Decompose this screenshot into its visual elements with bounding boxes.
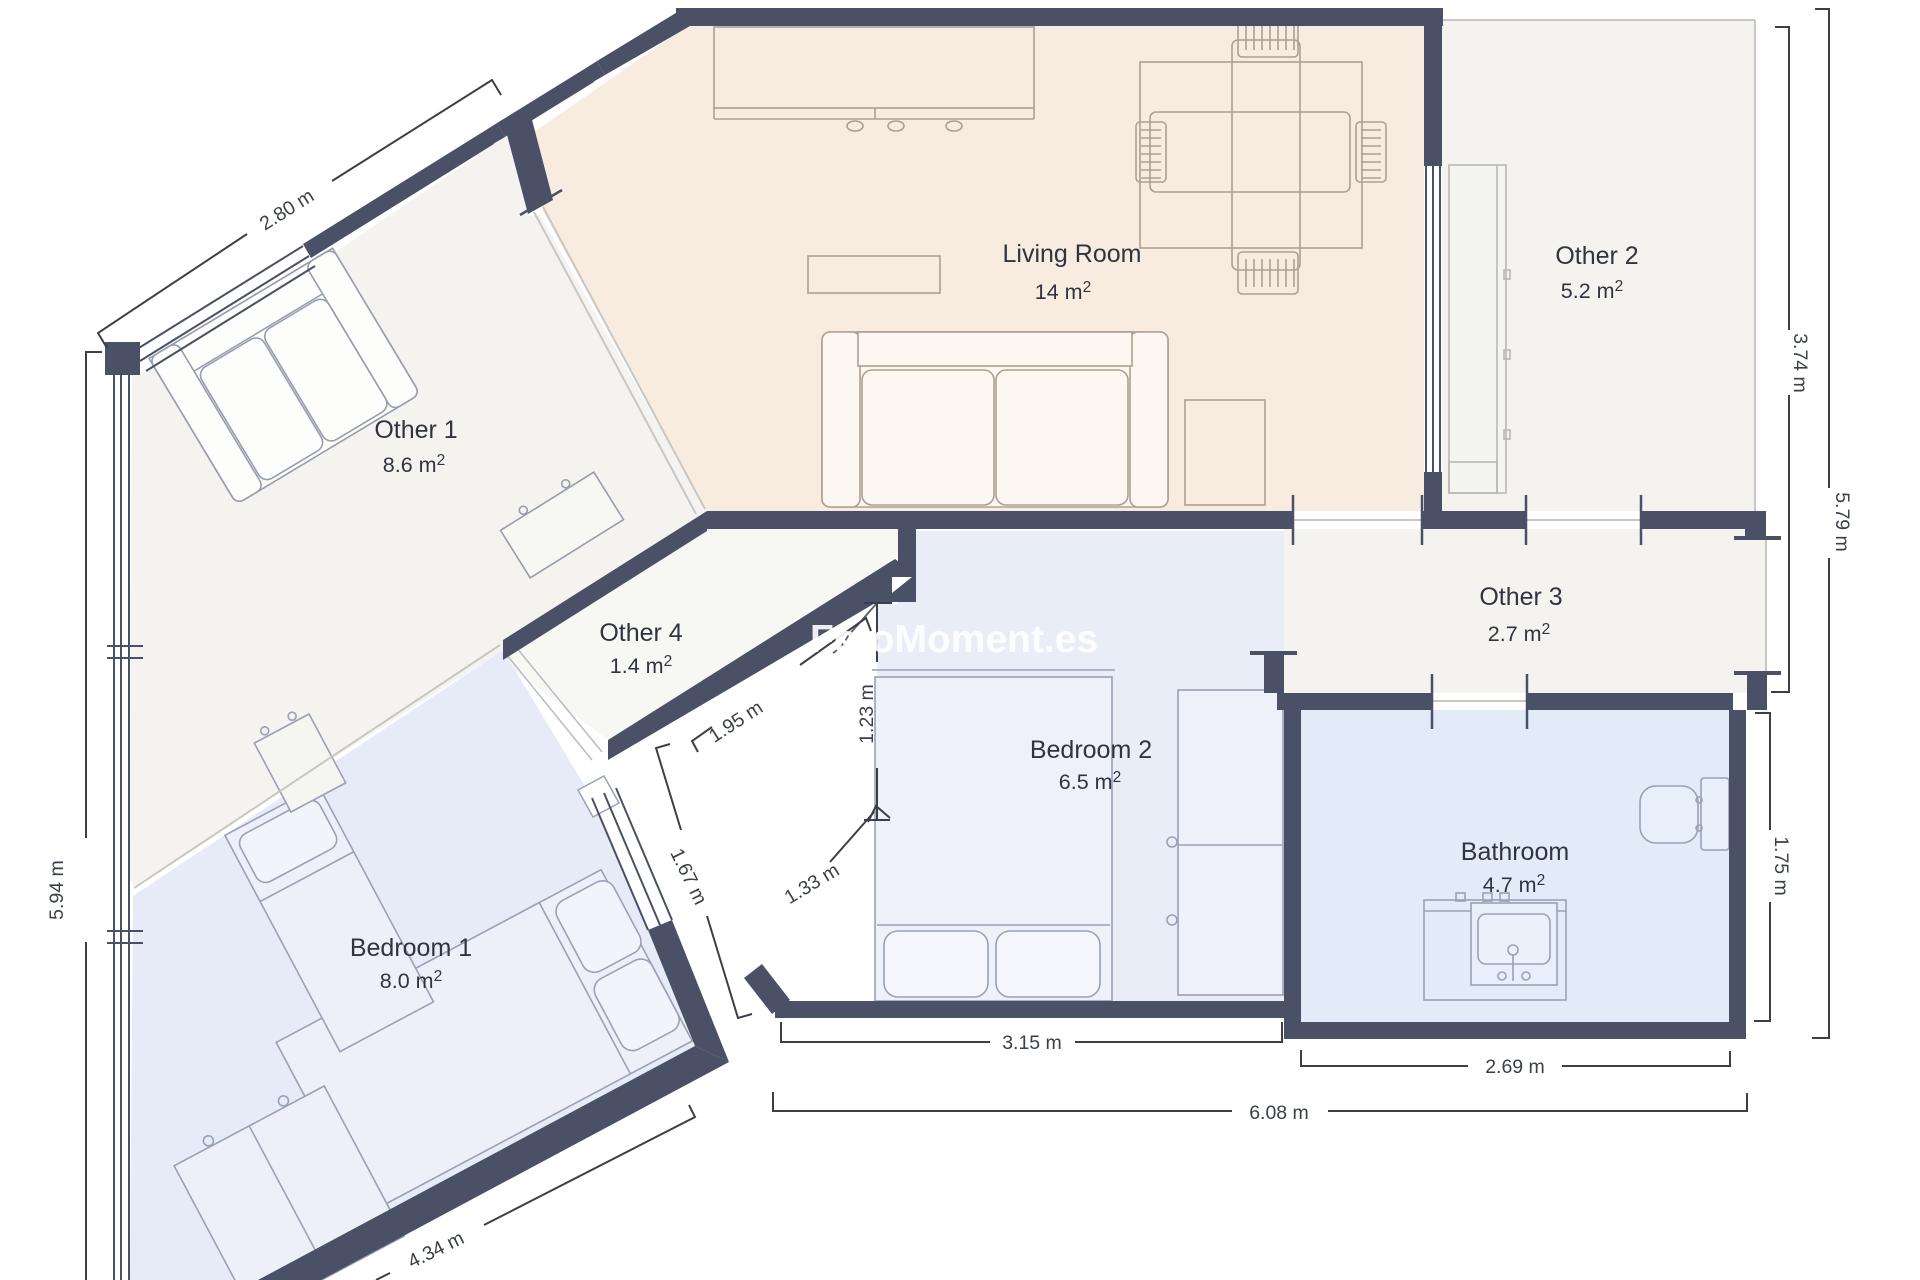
svg-text:Bedroom 1: Bedroom 1 <box>350 934 472 962</box>
svg-text:1.23 m: 1.23 m <box>856 684 878 744</box>
svg-text:FotoMoment.es: FotoMoment.es <box>810 618 1098 661</box>
svg-text:1.4 m2: 1.4 m2 <box>610 653 672 678</box>
svg-text:2.7 m2: 2.7 m2 <box>1488 621 1550 646</box>
svg-text:8.6 m2: 8.6 m2 <box>383 452 445 477</box>
svg-text:5.2 m2: 5.2 m2 <box>1561 278 1623 303</box>
svg-text:5.94 m: 5.94 m <box>46 860 68 920</box>
svg-text:Bedroom 2: Bedroom 2 <box>1030 736 1152 764</box>
svg-text:6.08 m: 6.08 m <box>1249 1102 1309 1124</box>
svg-text:Other 3: Other 3 <box>1479 583 1562 611</box>
svg-text:2.69 m: 2.69 m <box>1485 1056 1545 1078</box>
svg-text:1.75 m: 1.75 m <box>1770 836 1792 896</box>
svg-text:4.7 m2: 4.7 m2 <box>1483 872 1545 897</box>
svg-text:Other 1: Other 1 <box>374 416 457 444</box>
svg-text:6.5 m2: 6.5 m2 <box>1059 769 1121 794</box>
svg-text:3.74 m: 3.74 m <box>1789 333 1811 393</box>
svg-text:Living Room: Living Room <box>1003 240 1142 268</box>
svg-text:Other 2: Other 2 <box>1555 242 1638 270</box>
svg-text:Other 4: Other 4 <box>599 619 682 647</box>
svg-text:3.15 m: 3.15 m <box>1002 1032 1062 1054</box>
svg-text:Bathroom: Bathroom <box>1461 838 1569 866</box>
svg-text:5.79 m: 5.79 m <box>1831 492 1853 552</box>
svg-text:8.0 m2: 8.0 m2 <box>380 968 442 993</box>
